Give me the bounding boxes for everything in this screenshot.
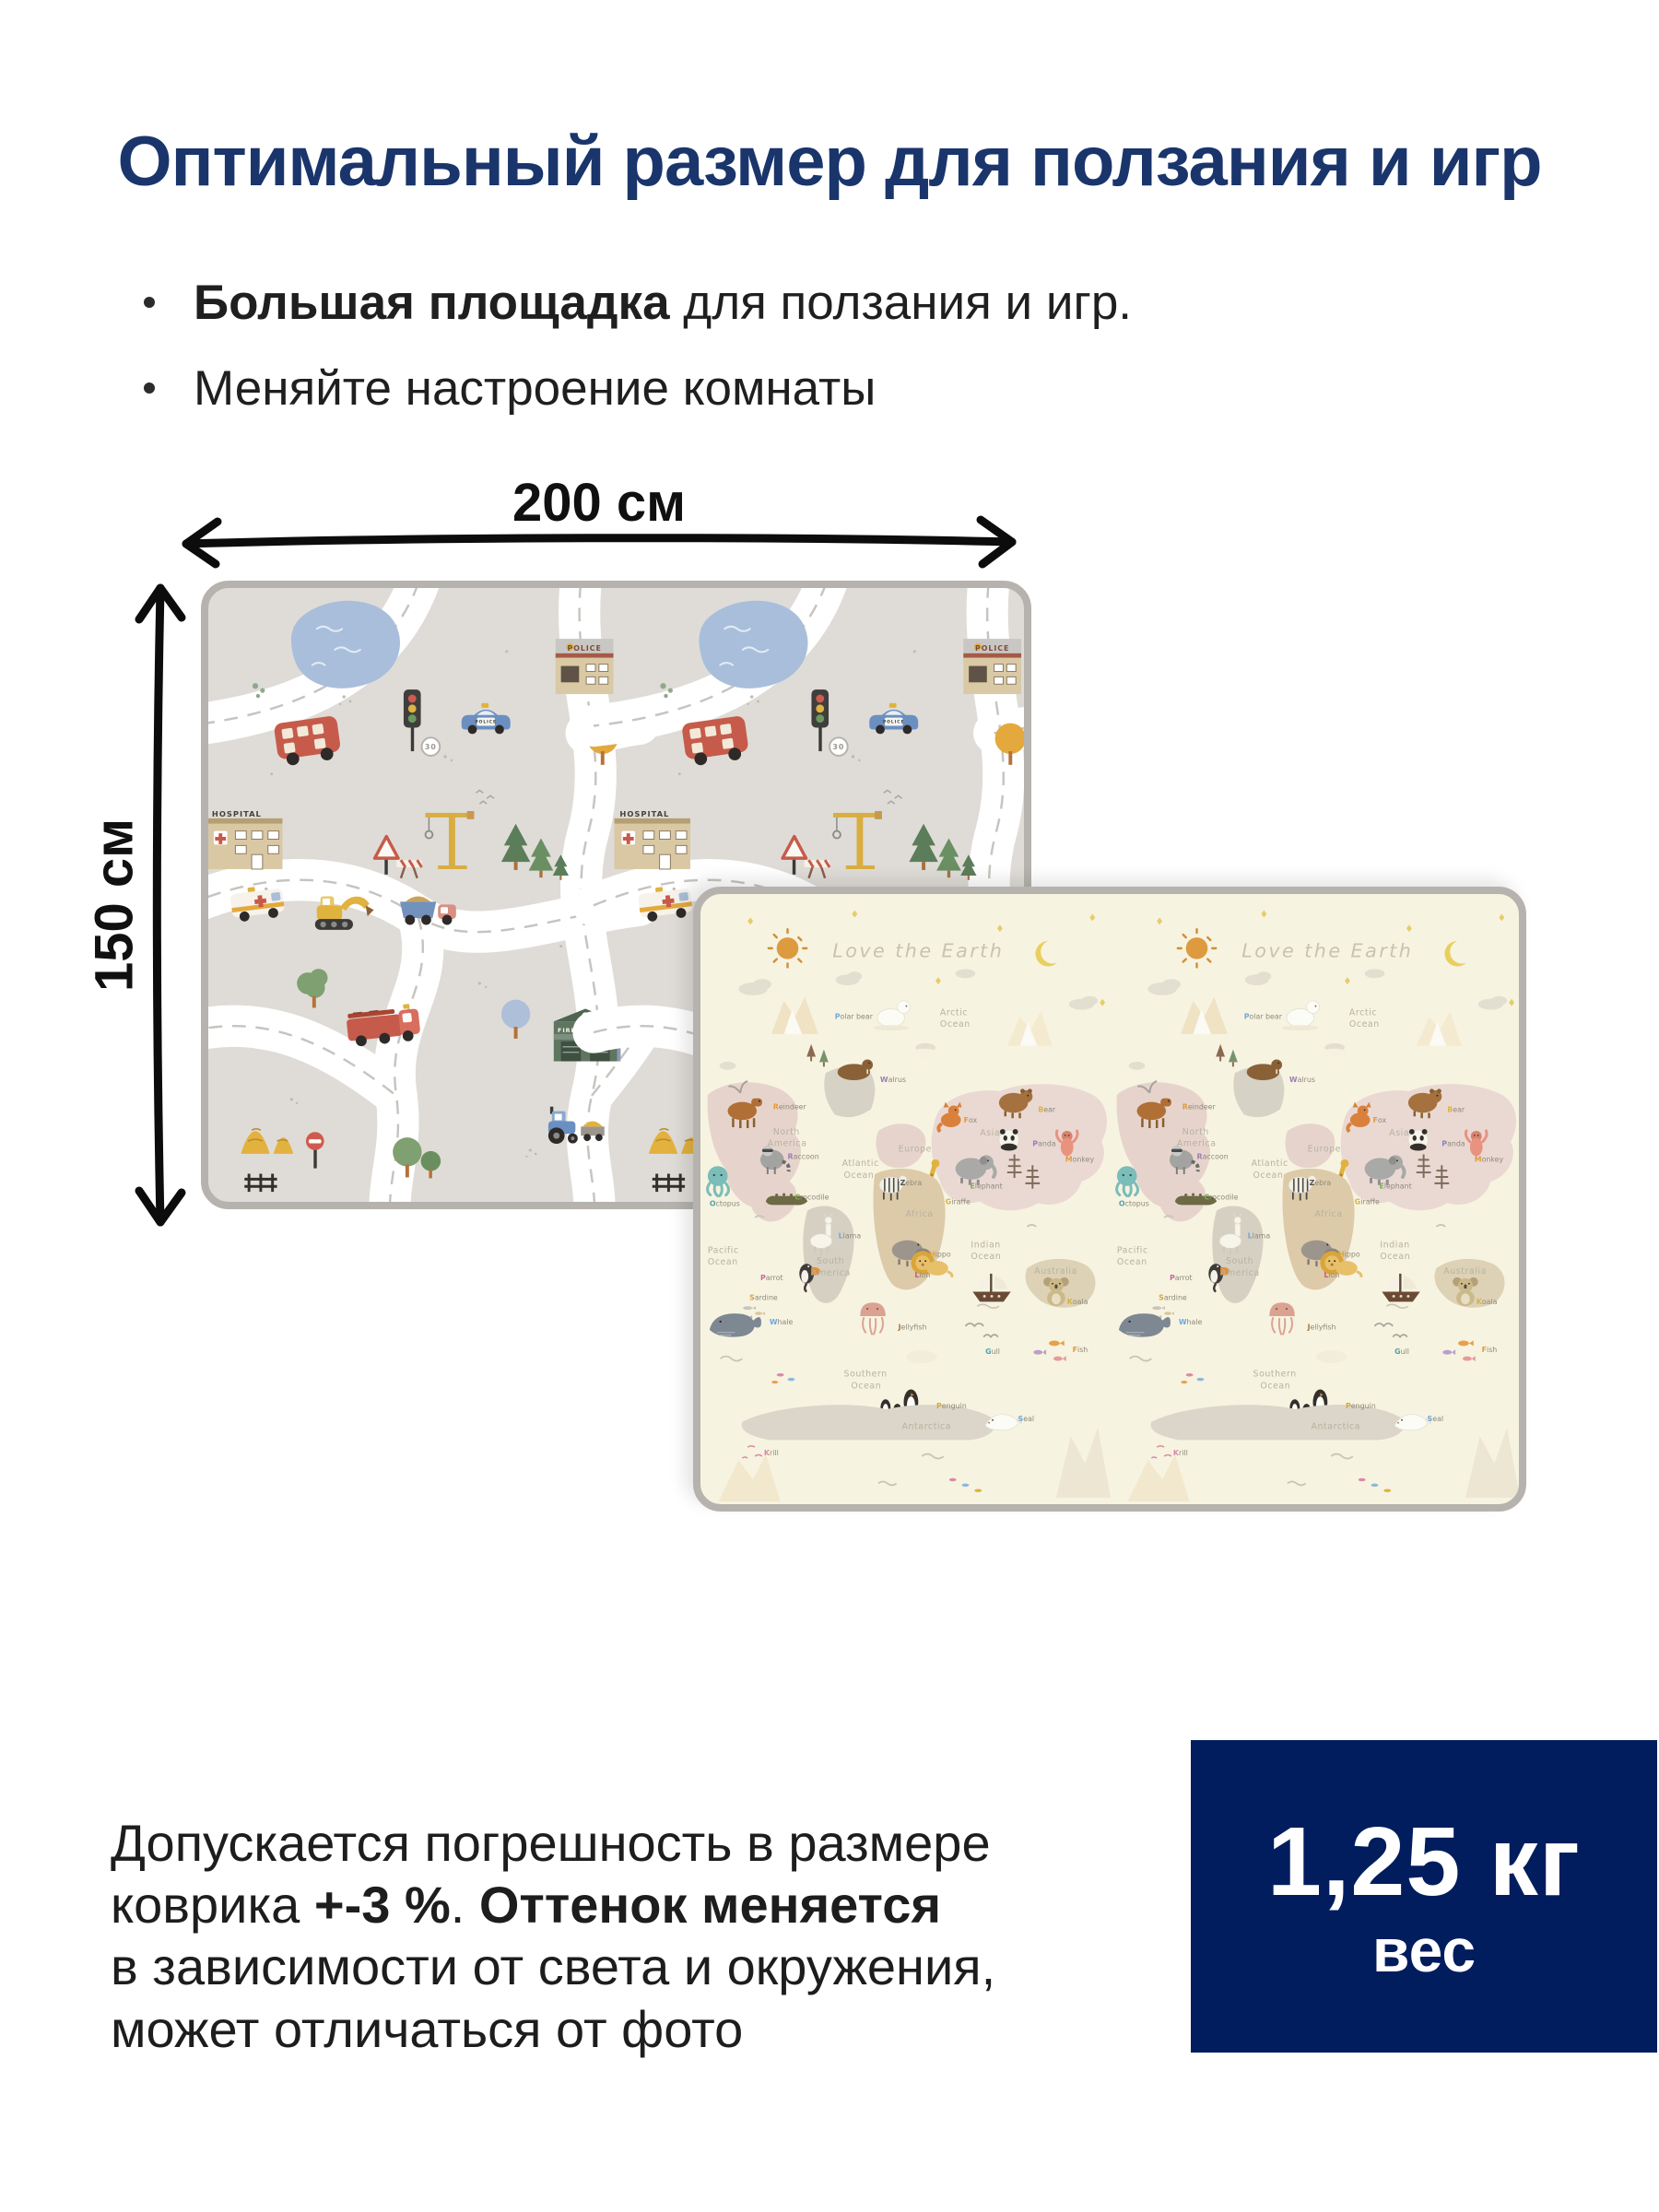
- animal-label: Raccoon: [788, 1152, 819, 1160]
- icebergs: [771, 997, 1053, 1058]
- continent-label: Antarctica: [902, 1422, 952, 1432]
- ocean-label: Ocean: [940, 1019, 971, 1030]
- bullet-icon: [144, 297, 155, 308]
- police-car-sign: POLICE: [475, 720, 497, 725]
- police-car: [462, 703, 511, 734]
- disclaimer-text: Допускается погрешность в размере коврик…: [111, 1812, 995, 2060]
- animal-label: Reindeer: [773, 1102, 807, 1111]
- animal-label: Parrot: [760, 1274, 783, 1282]
- pine-trees: [501, 824, 569, 880]
- feature-text: Меняйте настроение комнаты: [194, 361, 876, 416]
- animal-label: Hippo: [929, 1250, 951, 1258]
- seal: [985, 1415, 1021, 1430]
- ocean-label: Arctic: [940, 1007, 968, 1018]
- double-decker-bus: [274, 715, 343, 767]
- ocean-label: Atlantic: [842, 1159, 879, 1169]
- green-tree: [297, 969, 327, 1007]
- animal-label: Fish: [1073, 1346, 1088, 1354]
- whale: [710, 1313, 761, 1336]
- animal-label: Seal: [1018, 1415, 1035, 1423]
- ocean-label: Ocean: [708, 1257, 738, 1267]
- ocean-label: Ocean: [851, 1381, 881, 1391]
- feature-item: Большая площадка для ползания и игр.: [140, 275, 1132, 331]
- world-mat-tile-repeat: [1117, 911, 1519, 1501]
- continent-label: Asia: [980, 1128, 1000, 1138]
- continent-label: America: [768, 1139, 807, 1149]
- weight-value: 1,25 кг: [1267, 1813, 1581, 1911]
- continent-label: South: [817, 1256, 844, 1266]
- feature-bold: Большая площадка: [194, 276, 670, 330]
- krill-marks: [742, 1446, 762, 1458]
- road-barrier: [396, 860, 421, 878]
- weight-label: вес: [1372, 1920, 1476, 1981]
- haystacks: [241, 1129, 293, 1154]
- ocean-label: Southern: [844, 1370, 888, 1380]
- animal-label: Zebra: [900, 1179, 923, 1187]
- dump-truck: [400, 896, 456, 924]
- mat-title: Love the Earth: [832, 940, 1004, 962]
- panda: [999, 1129, 1019, 1151]
- product-infographic: Оптимальный размер для ползания и игр Бо…: [0, 0, 1659, 2212]
- world-mat-art: Love the EarthArcticOceanPolar bearWalru…: [700, 894, 1519, 1504]
- animal-label: Walrus: [880, 1076, 906, 1084]
- animal-label: Crocodile: [794, 1194, 829, 1202]
- bird-marks: [476, 790, 494, 804]
- continent-label: Europe: [899, 1145, 932, 1155]
- weight-badge: 1,25 кг вес: [1191, 1740, 1657, 2053]
- animal-label: Monkey: [1065, 1155, 1095, 1163]
- warning-sign: [375, 837, 399, 875]
- sun-icon: [769, 929, 806, 967]
- animal-label: Polar bear: [835, 1012, 874, 1020]
- moon-icon: [1035, 941, 1056, 966]
- continent-label: North: [773, 1127, 800, 1137]
- hospital-sign: HOSPITAL: [212, 809, 262, 818]
- speed-limit-sign: 30: [425, 743, 437, 751]
- construction-crane: [425, 811, 474, 869]
- stop-sign: [306, 1132, 324, 1168]
- disclaimer-line: коврика +-3 %. Оттенок меняется: [111, 1874, 995, 1935]
- tiny-pines: [806, 1044, 829, 1067]
- continent-label: Australia: [1034, 1266, 1077, 1277]
- jellyfish: [860, 1302, 886, 1334]
- octopus: [708, 1166, 729, 1195]
- ice-floe: [906, 1350, 936, 1363]
- playmat-worldmap-side: Love the EarthArcticOceanPolar bearWalru…: [693, 887, 1526, 1512]
- disclaimer-line: может отличаться от фото: [111, 1998, 995, 2060]
- fire-truck: [346, 1003, 421, 1047]
- animal-label: Octopus: [710, 1199, 740, 1207]
- disclaimer-line: Допускается погрешность в размере: [111, 1812, 995, 1874]
- gull-birds: [965, 1324, 997, 1337]
- animal-label: Panda: [1032, 1140, 1056, 1148]
- blue-tree: [501, 1000, 530, 1039]
- animal-label: Sardine: [749, 1293, 778, 1301]
- disclaimer-line: в зависимости от света и окружения,: [111, 1935, 995, 1997]
- animal-label: Giraffe: [946, 1197, 971, 1206]
- police-building-sign: POLICE: [568, 644, 602, 653]
- ocean-label: Ocean: [971, 1252, 1001, 1262]
- ocean-label: Pacific: [708, 1245, 739, 1255]
- fence: [244, 1174, 276, 1193]
- feature-list: Большая площадка для ползания и игр. Мен…: [140, 275, 1132, 446]
- animal-label: Llama: [839, 1232, 862, 1241]
- height-dimension-arrow: [131, 566, 190, 1244]
- animal-label: Krill: [764, 1449, 779, 1457]
- continent-label: Africa: [905, 1209, 933, 1219]
- ocean-label: Ocean: [844, 1171, 875, 1181]
- animal-label: Elephant: [970, 1182, 1002, 1191]
- traffic-light-icon: [404, 689, 421, 751]
- bottom-fish: [949, 1478, 982, 1492]
- polar-bear: [873, 1001, 910, 1030]
- sail-boat: [972, 1274, 1010, 1308]
- page-title: Оптимальный размер для ползания и игр: [0, 122, 1659, 202]
- fish-trio: [1033, 1340, 1065, 1361]
- pond: [291, 601, 400, 688]
- ocean-label: Indian: [971, 1240, 1000, 1250]
- animal-label: Jellyfish: [898, 1324, 927, 1332]
- continent-label: America: [811, 1268, 851, 1278]
- world-mat-tile: Love the EarthArcticOceanPolar bearWalru…: [708, 911, 1111, 1501]
- animal-label: Koala: [1067, 1298, 1088, 1306]
- animal-label: Penguin: [936, 1402, 967, 1410]
- animal-label: Whale: [770, 1318, 794, 1326]
- feature-item: Меняйте настроение комнаты: [140, 360, 1132, 417]
- hospital-building: [208, 818, 282, 869]
- animal-label: Bear: [1038, 1105, 1056, 1113]
- animal-label: Fox: [963, 1116, 977, 1124]
- bullet-icon: [144, 382, 155, 394]
- animal-label: Gull: [985, 1347, 1000, 1356]
- feature-text: для ползания и игр.: [670, 276, 1132, 330]
- city-mat-tile: POLICEPOLICEHOSPITAL30FIRE STATION: [208, 588, 639, 1202]
- width-dimension-arrow: [164, 512, 1034, 571]
- animal-label: Lion: [914, 1271, 930, 1279]
